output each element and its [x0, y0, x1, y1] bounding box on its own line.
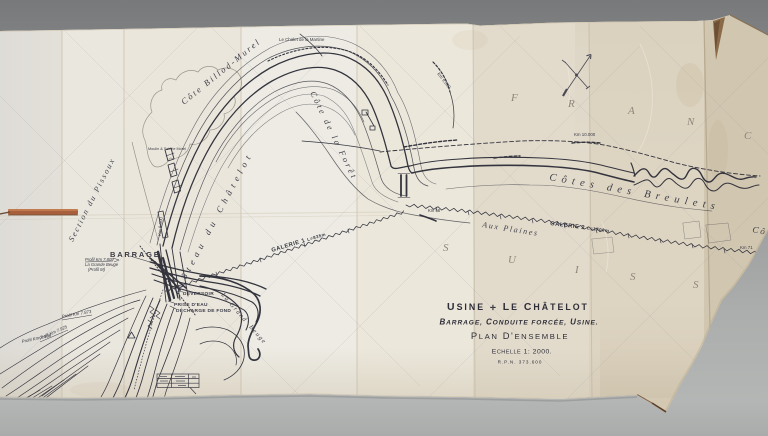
svg-text:ECHELLE 1: 2000.: ECHELLE 1: 2000. — [492, 349, 552, 356]
svg-text:Km 10.000: Km 10.000 — [574, 132, 596, 137]
svg-text:C: C — [744, 130, 752, 142]
svg-text:USINE ✛ LE CHÂTELOT: USINE ✛ LE CHÂTELOT — [447, 301, 589, 313]
svg-text:PLAN D'ENSEMBLE: PLAN D'ENSEMBLE — [471, 330, 569, 341]
svg-text:(Profil M): (Profil M) — [88, 267, 106, 272]
svg-text:A: A — [627, 105, 635, 117]
svg-text:N: N — [686, 116, 695, 128]
svg-text:Moulin & Scierie Morel: Moulin & Scierie Morel — [148, 147, 186, 151]
svg-text:PRISE D'EAU: PRISE D'EAU — [174, 302, 208, 308]
svg-text:F: F — [510, 92, 518, 104]
svg-text:R: R — [567, 98, 575, 110]
svg-text:R.P.N. 373.600: R.P.N. 373.600 — [498, 360, 543, 365]
svg-text:S: S — [693, 279, 699, 291]
svg-text:U: U — [508, 254, 517, 266]
svg-text:Km 71: Km 71 — [740, 245, 753, 250]
svg-text:S: S — [443, 242, 449, 254]
svg-text:Km 58: Km 58 — [428, 208, 441, 213]
svg-text:BARRAGE: BARRAGE — [110, 250, 161, 259]
svg-text:Le Chalet de la Martine: Le Chalet de la Martine — [279, 37, 325, 42]
svg-text:BARRAGE, CONDUITE FORCÉE, USIN: BARRAGE, CONDUITE FORCÉE, USINE. — [439, 318, 598, 327]
svg-text:S: S — [630, 271, 636, 283]
